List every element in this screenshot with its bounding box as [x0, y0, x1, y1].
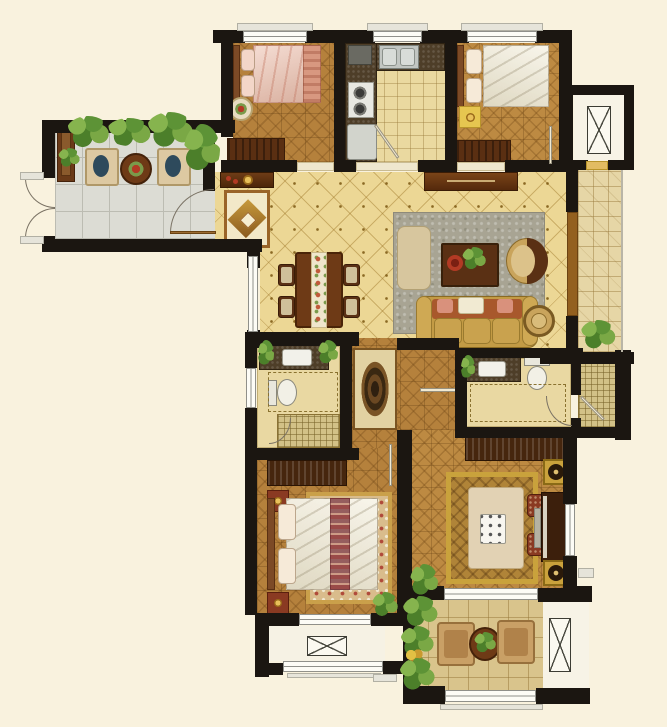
window: [248, 256, 258, 332]
wall-segment: [334, 43, 345, 162]
bed-pillow: [466, 78, 482, 103]
door-leaf: [549, 126, 552, 164]
bedroom-left-dresser: [227, 138, 285, 161]
wall-segment: [207, 239, 262, 252]
hall-glass-edge: [621, 170, 623, 352]
coffee-table-plant: [462, 247, 486, 271]
wall-segment: [42, 120, 55, 178]
bed-pillow: [278, 548, 296, 584]
wall-segment: [397, 338, 459, 350]
wall-segment: [445, 43, 457, 172]
wall-segment: [559, 85, 634, 95]
hall-runner-rug: [353, 348, 397, 430]
french-door-swing: [25, 178, 55, 208]
chair-seat: [504, 628, 528, 656]
bed-headboard: [233, 45, 240, 103]
floor-plan: [0, 0, 667, 727]
master-wardrobe: [267, 460, 347, 486]
floor-inlay: [268, 372, 338, 412]
vanity-sink: [282, 349, 312, 366]
balcony-plant: [399, 658, 435, 692]
chair-seat: [346, 299, 357, 315]
bay-window-mullion: [307, 636, 347, 656]
study-wardrobe: [465, 437, 567, 461]
table-runner: [311, 252, 327, 328]
wall-segment: [563, 430, 577, 504]
desk-device: [480, 514, 506, 544]
window: [243, 31, 307, 42]
piano-bench: [534, 508, 541, 548]
counter-appliance: [348, 45, 372, 65]
potted-plant: [58, 148, 80, 168]
piano-keys: [543, 496, 547, 558]
bed-pillow: [241, 49, 255, 71]
ottoman-bench: [397, 226, 431, 290]
chair-cushion: [93, 155, 109, 177]
wall-segment: [624, 85, 634, 170]
window-sill: [440, 704, 543, 710]
chair-seat: [444, 630, 468, 658]
lamp: [466, 113, 475, 122]
window: [373, 31, 422, 42]
console-decor: [226, 176, 231, 181]
wall-segment: [42, 239, 215, 252]
vanity-sink: [478, 361, 506, 377]
wall-segment: [576, 586, 592, 602]
wall-segment: [245, 448, 359, 460]
bed-headboard: [267, 498, 275, 590]
chair-seat: [281, 267, 292, 283]
window-sill: [461, 23, 543, 31]
armchair-seat: [511, 245, 535, 277]
entry-door-mat: [586, 161, 608, 170]
wall-segment: [538, 588, 578, 602]
side-table-center: [531, 313, 547, 329]
bedroom-right-dresser: [449, 140, 511, 162]
sofa-back-cushion: [492, 318, 520, 344]
vanity-plant: [461, 355, 475, 381]
foyer-door-leaf: [170, 231, 216, 234]
wall-segment: [245, 408, 257, 448]
wall-segment: [245, 460, 257, 615]
chair-seat: [346, 267, 357, 283]
hall-plant: [580, 320, 616, 350]
tv-cabinet-handle: [447, 180, 495, 182]
bed-foot-blanket: [303, 45, 321, 103]
bed-duvet-pink: [253, 45, 305, 103]
potted-plant: [66, 116, 110, 148]
wall-segment: [566, 170, 578, 212]
threshold-east: [567, 212, 578, 316]
bed-pillow: [278, 504, 296, 540]
corner-step: [373, 674, 397, 682]
sink-basin: [400, 48, 415, 66]
door-threshold: [457, 162, 505, 171]
vanity-plant: [318, 340, 338, 366]
wall-segment: [608, 160, 634, 170]
bed-headboard: [457, 45, 464, 107]
red-dish: [447, 255, 463, 271]
wall-segment: [305, 30, 375, 43]
door-threshold: [297, 162, 334, 171]
wall-segment: [455, 427, 631, 438]
french-door-swing: [25, 208, 55, 238]
refrigerator: [347, 124, 377, 160]
burner: [352, 86, 368, 100]
sofa-center-cushion: [458, 297, 484, 314]
vanity-plant: [258, 340, 274, 368]
sofa-back-cushion: [463, 318, 491, 344]
potted-plant: [106, 118, 152, 146]
wall-segment: [340, 346, 352, 448]
bathroom-door-leaf: [420, 388, 456, 392]
chair-cushion: [165, 155, 181, 177]
wall-segment: [535, 30, 572, 43]
nightstand-lamp: [274, 599, 282, 607]
wall-segment: [536, 688, 590, 704]
window-sill: [237, 23, 313, 31]
duct-shaft-symbol: [549, 618, 571, 672]
bed-pillow: [241, 75, 255, 97]
wall-segment: [255, 663, 283, 675]
window: [565, 504, 575, 556]
window: [467, 31, 537, 42]
wall-segment: [334, 160, 356, 172]
door-hinge-block: [20, 236, 44, 244]
sofa-throw-pillow: [497, 299, 513, 313]
speaker-cone: [548, 565, 564, 581]
bedroom-plant: [372, 592, 398, 618]
sofa-throw-pillow: [437, 299, 453, 313]
elevator-symbol: [587, 106, 611, 154]
door-leaf: [389, 444, 392, 486]
bay-window-outer: [283, 661, 383, 672]
chair-seat: [281, 299, 292, 315]
side-table-flower: [234, 102, 248, 116]
doorway-plant: [410, 564, 438, 598]
burner: [352, 102, 368, 116]
wall-segment: [455, 348, 583, 358]
wall-segment: [245, 346, 257, 368]
corner-step: [578, 568, 594, 578]
window: [246, 368, 256, 408]
bay-window-inner: [299, 614, 371, 625]
balcony-window: [445, 690, 536, 702]
potted-plant: [184, 124, 220, 176]
window-sill: [287, 673, 381, 678]
balcony-slider-threshold: [444, 588, 538, 600]
shower-room: [578, 355, 617, 428]
speaker-cone: [548, 464, 564, 480]
console-decor: [233, 179, 238, 184]
table-plant: [474, 632, 496, 654]
console-bowl: [243, 175, 253, 185]
wall-segment: [420, 30, 469, 43]
table-flowers: [127, 160, 145, 178]
door-hinge-block: [20, 172, 44, 180]
wall-segment: [571, 355, 581, 395]
bed-pillow: [466, 49, 482, 74]
bed-runner: [330, 498, 350, 590]
sink-basin: [382, 48, 397, 66]
wall-segment: [564, 160, 588, 170]
door-threshold: [356, 162, 418, 171]
wall-segment: [221, 160, 297, 172]
balcony-plant: [402, 596, 438, 628]
window-sill: [367, 23, 428, 31]
bed-duvet-white: [483, 45, 549, 107]
wall-segment: [213, 30, 245, 43]
